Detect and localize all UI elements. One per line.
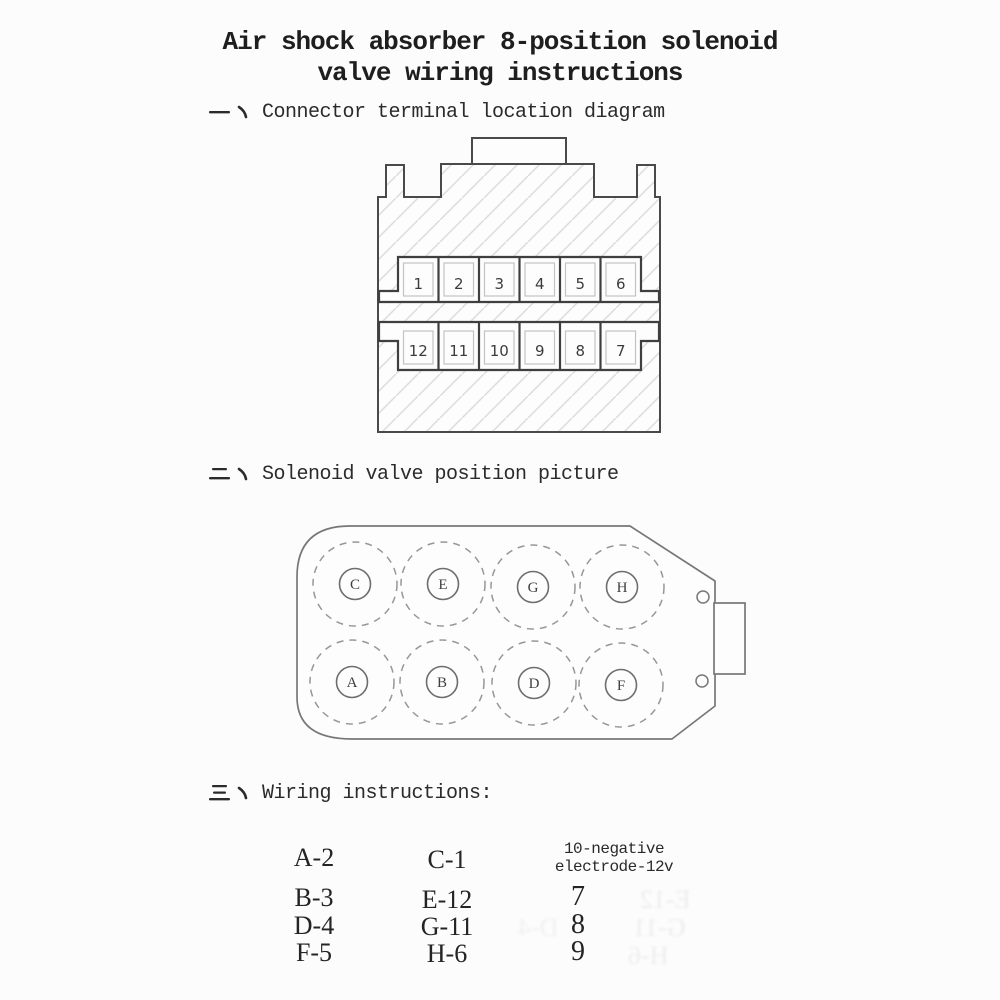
wiring-pair: A-2	[294, 843, 334, 873]
wiring-pair: D-4	[294, 911, 334, 941]
wiring-pair: G-11	[421, 912, 473, 942]
valve-port-label-F: F	[617, 678, 625, 694]
valve-diagram: CEGHABDF	[297, 526, 745, 739]
wiring-pair: C-1	[428, 845, 467, 875]
wiring-pair: B-3	[295, 883, 334, 913]
diagrams-canvas: 123456121110987 CEGHABDF	[0, 0, 1000, 1000]
valve-mount-hole-top	[697, 591, 709, 603]
terminal-number-3: 3	[494, 275, 504, 293]
valve-port-label-A: A	[347, 675, 358, 691]
terminal-number-6: 6	[616, 275, 626, 293]
terminal-number-4: 4	[535, 275, 545, 293]
terminal-number-7: 7	[616, 342, 626, 360]
valve-port-label-G: G	[528, 580, 539, 596]
wiring-negative-note-line2: electrode-12v	[555, 858, 673, 876]
terminal-number-10: 10	[490, 342, 509, 360]
valve-port-label-H: H	[617, 580, 628, 596]
valve-connector-tab	[714, 603, 745, 674]
connector-latch-tab	[472, 138, 566, 165]
connector-diagram: 123456121110987	[378, 138, 660, 432]
terminal-number-9: 9	[535, 342, 545, 360]
scanned-instruction-page: Air shock absorber 8-position solenoid v…	[0, 0, 1000, 1000]
wiring-pair: H-6	[427, 939, 467, 969]
terminal-number-11: 11	[449, 342, 468, 360]
wiring-pair: E-12	[422, 885, 473, 915]
terminal-number-12: 12	[409, 342, 428, 360]
valve-mount-hole-bottom	[696, 675, 708, 687]
terminal-number-1: 1	[413, 275, 423, 293]
valve-port-label-E: E	[438, 577, 447, 593]
valve-port-label-C: C	[350, 577, 360, 593]
wiring-terminal-number: 9	[571, 936, 585, 968]
terminal-number-5: 5	[575, 275, 585, 293]
wiring-negative-note-line1: 10-negative	[564, 840, 664, 858]
valve-port-label-B: B	[437, 675, 447, 691]
valve-port-label-D: D	[529, 676, 540, 692]
valve-body	[297, 526, 715, 739]
terminal-number-2: 2	[454, 275, 464, 293]
terminal-number-8: 8	[575, 342, 585, 360]
wiring-pair: F-5	[296, 938, 332, 968]
